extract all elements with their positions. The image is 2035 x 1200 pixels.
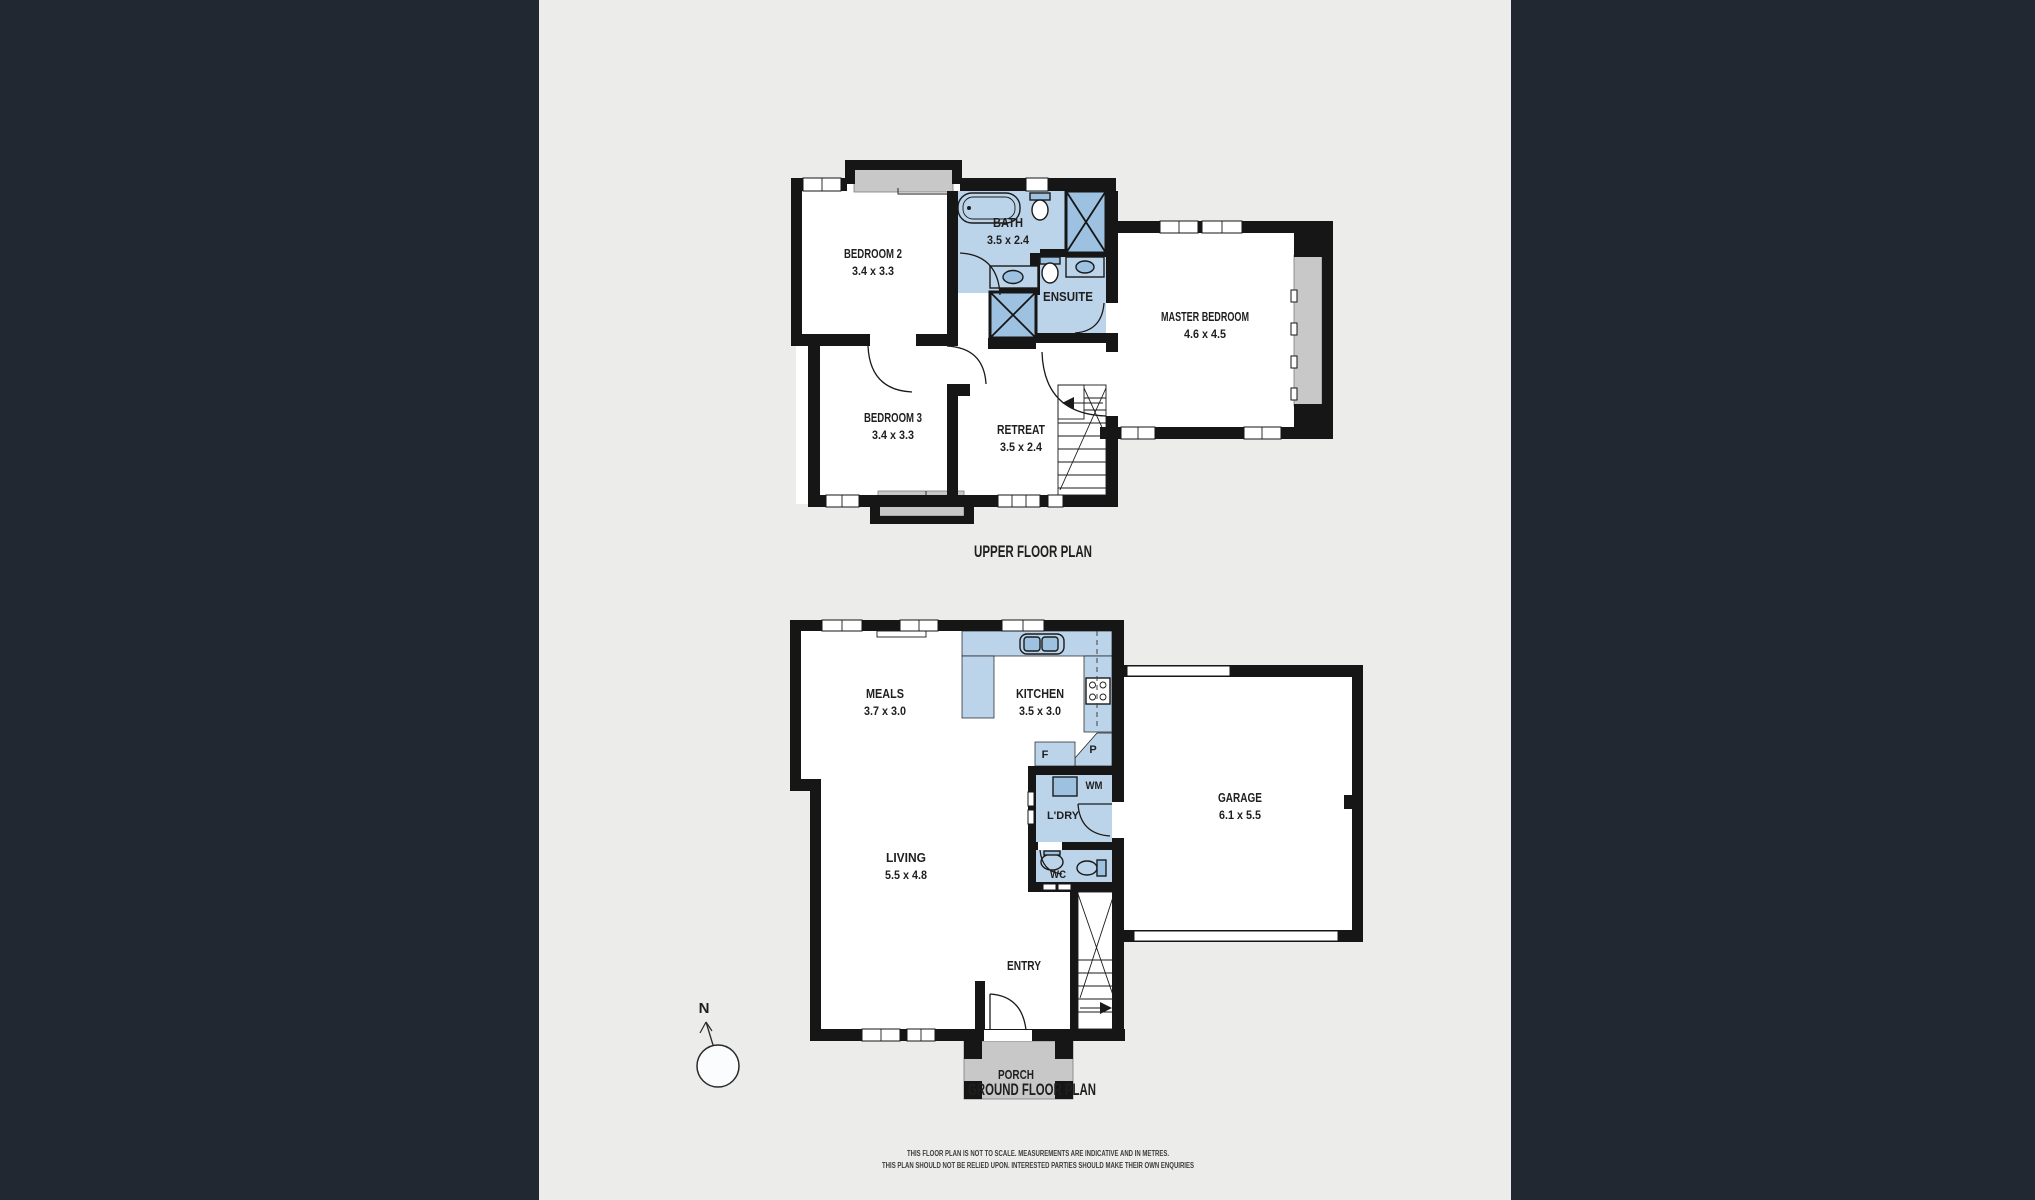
retreat-label: RETREAT <box>997 423 1045 437</box>
meals-dims: 3.7 x 3.0 <box>864 704 906 718</box>
washing-machine <box>1053 777 1077 796</box>
bedroom2-dims: 3.4 x 3.3 <box>852 264 894 278</box>
garage-dims: 6.1 x 5.5 <box>1219 808 1261 822</box>
master-bedroom-dims: 4.6 x 4.5 <box>1184 327 1226 341</box>
front-door-opening <box>984 1030 1032 1041</box>
upper-floor-title: UPPER FLOOR PLAN <box>974 542 1092 561</box>
bedroom3-label: BEDROOM 3 <box>864 411 922 425</box>
kitchen-sink <box>1020 634 1064 654</box>
bath-dims: 3.5 x 2.4 <box>987 233 1029 247</box>
garage-window-strip <box>1127 666 1230 676</box>
ensuite-toilet <box>1040 257 1060 283</box>
fridge-label: F <box>1042 749 1049 761</box>
north-label: N <box>699 1000 710 1017</box>
kitchen-dims: 3.5 x 3.0 <box>1019 704 1061 718</box>
bedroom2-label: BEDROOM 2 <box>844 247 902 261</box>
floorplan-image: BEDROOM 2 3.4 x 3.3 BATH 3.5 x 2.4 ENSUI… <box>0 0 2035 1200</box>
hall-shower-base-wall <box>988 338 1036 349</box>
bedroom3-dims: 3.4 x 3.3 <box>872 428 914 442</box>
disclaimer-line2: THIS PLAN SHOULD NOT BE RELIED UPON. INT… <box>882 1161 1194 1170</box>
retreat-dims: 3.5 x 2.4 <box>1000 440 1042 454</box>
wc-label: WC <box>1050 869 1066 881</box>
pantry-label: P <box>1089 744 1096 756</box>
entry-label: ENTRY <box>1007 959 1042 973</box>
laundry-label: L'DRY <box>1047 810 1080 822</box>
meals-label: MEALS <box>866 687 904 701</box>
ensuite-vanity <box>1066 257 1104 277</box>
ground-floor-title: GROUND FLOOR PLAN <box>968 1080 1096 1099</box>
master-robe <box>1294 255 1322 406</box>
cooktop <box>1086 678 1110 704</box>
disclaimer-line1: THIS FLOOR PLAN IS NOT TO SCALE. MEASURE… <box>907 1149 1169 1158</box>
garage-label: GARAGE <box>1218 791 1262 805</box>
wc-toilet <box>1077 860 1106 876</box>
living-label: LIVING <box>886 851 926 865</box>
washer-label: WM <box>1086 780 1103 792</box>
garage-door <box>1134 931 1338 941</box>
bath-label: BATH <box>993 216 1023 230</box>
kitchen-label: KITCHEN <box>1016 687 1064 701</box>
living-dims: 5.5 x 4.8 <box>885 868 927 882</box>
wc-basin <box>1041 851 1063 870</box>
master-bedroom-label: MASTER BEDROOM <box>1161 310 1249 324</box>
ensuite-label: ENSUITE <box>1043 290 1093 304</box>
bath-toilet <box>1030 193 1050 220</box>
